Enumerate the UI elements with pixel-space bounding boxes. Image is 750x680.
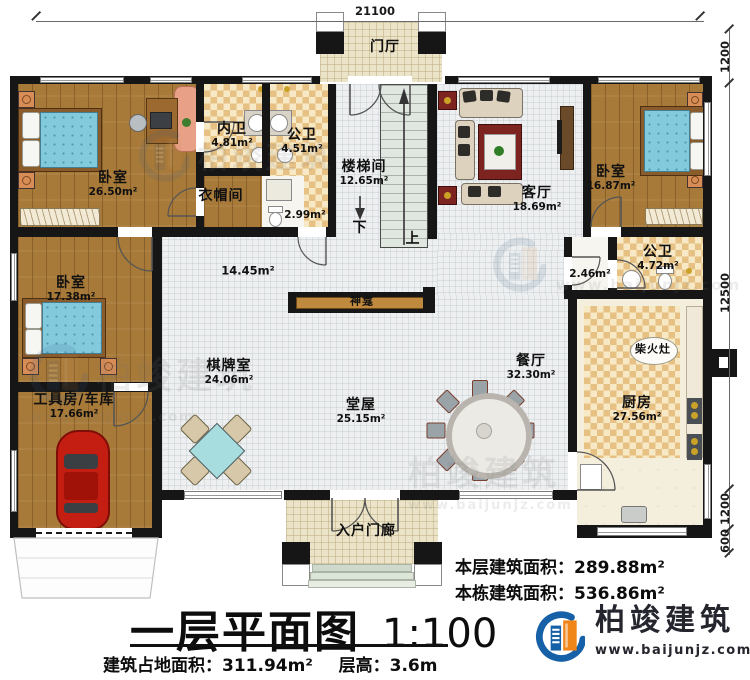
dimension-right-main: 12500 bbox=[718, 273, 732, 313]
chimney-flue bbox=[719, 357, 728, 368]
chair bbox=[427, 423, 446, 439]
plant-icon bbox=[444, 97, 451, 104]
nightstand bbox=[18, 172, 35, 189]
wall bbox=[284, 490, 332, 500]
eave-box bbox=[316, 12, 344, 32]
room-label-bedroom-tl: 卧室 26.50m² bbox=[89, 170, 138, 198]
window bbox=[598, 77, 700, 83]
door-opening bbox=[118, 227, 152, 237]
title-underline bbox=[130, 644, 448, 647]
floor-height-value: 3.6m bbox=[390, 656, 438, 676]
window bbox=[40, 77, 124, 83]
shower-icon bbox=[686, 268, 692, 274]
plant-icon bbox=[494, 146, 504, 156]
window bbox=[184, 491, 282, 499]
wall bbox=[204, 168, 262, 176]
sink-icon bbox=[622, 270, 641, 289]
wall bbox=[568, 299, 577, 452]
nightstand bbox=[100, 358, 117, 375]
column bbox=[414, 542, 442, 564]
door-opening bbox=[196, 122, 204, 152]
cushion bbox=[480, 90, 493, 101]
cushion bbox=[458, 126, 470, 138]
burner-icon bbox=[691, 412, 698, 419]
mattress bbox=[40, 112, 98, 168]
computer-icon bbox=[150, 112, 172, 129]
cushion bbox=[496, 90, 510, 103]
door-opening bbox=[568, 452, 577, 490]
cushion bbox=[458, 144, 470, 156]
eave-box bbox=[418, 12, 446, 32]
kitchen-sink bbox=[621, 506, 647, 523]
wall bbox=[162, 490, 184, 500]
floor-area-value: 289.88m² bbox=[574, 558, 665, 578]
tv-icon bbox=[557, 120, 562, 154]
pillow bbox=[25, 329, 42, 355]
window bbox=[150, 77, 192, 83]
wardrobe bbox=[20, 208, 100, 226]
door-opening bbox=[330, 490, 400, 500]
room-label-kitchen: 厨房 27.56m² bbox=[613, 395, 662, 423]
column bbox=[282, 542, 310, 564]
window bbox=[704, 464, 711, 519]
car-roof bbox=[64, 472, 98, 500]
window bbox=[11, 253, 17, 301]
column bbox=[418, 32, 446, 54]
wall bbox=[564, 290, 712, 299]
mattress bbox=[644, 110, 690, 172]
wall bbox=[553, 490, 577, 500]
company-logo: 柏竣建筑 www.baijunjz.com bbox=[533, 606, 750, 666]
wall bbox=[262, 84, 270, 176]
room-label-garage: 工具房/车库 17.66m² bbox=[33, 392, 114, 420]
room-label-corridor: 14.45m² bbox=[221, 264, 274, 277]
wall bbox=[423, 287, 435, 312]
room-label-lobby-small: 2.46m² bbox=[569, 268, 610, 280]
plant-icon bbox=[182, 118, 191, 127]
building-area-value: 536.86m² bbox=[574, 584, 665, 604]
window bbox=[597, 527, 687, 536]
stairs-up-label: 上 bbox=[406, 231, 421, 247]
toilet-icon bbox=[269, 212, 282, 227]
dimension-tick bbox=[31, 11, 41, 21]
dimension-right-steps: 600 bbox=[718, 529, 732, 553]
column-base bbox=[282, 564, 310, 586]
door-opening bbox=[348, 76, 412, 84]
room-label-dining: 餐厅 32.30m² bbox=[507, 353, 556, 381]
wall bbox=[10, 227, 336, 237]
door-opening bbox=[114, 383, 148, 391]
floor-area-line: 本层建筑面积：289.88m² bbox=[455, 553, 665, 578]
company-website: www.baijunjz.com bbox=[595, 643, 750, 658]
step bbox=[308, 580, 416, 588]
room-label-stairwell: 楼梯间 12.65m² bbox=[340, 159, 389, 187]
kitchen-checker bbox=[584, 306, 680, 458]
burner-icon bbox=[691, 448, 698, 455]
room-label-porch: 入户门廊 bbox=[336, 523, 396, 539]
room-label-bedroom-tr: 卧室 16.87m² bbox=[587, 164, 636, 192]
dimension-right-porch: 1200 bbox=[718, 493, 732, 525]
window bbox=[458, 77, 550, 83]
footprint-value: 311.94m² bbox=[222, 656, 313, 676]
room-label-cloakroom: 衣帽间 bbox=[199, 188, 244, 204]
window bbox=[459, 491, 553, 499]
wall bbox=[400, 490, 445, 500]
room-label-shrine: 神龛 bbox=[350, 296, 374, 309]
mattress bbox=[42, 302, 102, 354]
dimension-tick bbox=[695, 11, 705, 21]
building-area-label: 本栋建筑面积： bbox=[455, 584, 574, 604]
cloakroom-floor bbox=[204, 176, 262, 233]
room-label-living: 客厅 18.69m² bbox=[513, 185, 562, 213]
window bbox=[704, 102, 711, 176]
plant-icon bbox=[444, 192, 451, 199]
company-logo-icon bbox=[533, 606, 585, 666]
car-rear-window bbox=[64, 503, 98, 513]
wall bbox=[583, 84, 591, 237]
column-base bbox=[414, 564, 442, 586]
step bbox=[310, 572, 414, 580]
burner-icon bbox=[691, 402, 698, 409]
column bbox=[316, 32, 344, 54]
tv-cabinet bbox=[560, 106, 574, 170]
room-label-bath-public-top: 公卫 4.51m² bbox=[281, 127, 322, 155]
faucet-icon bbox=[284, 86, 290, 92]
footprint-line: 建筑占地面积：311.94m² 层高：3.6m bbox=[103, 651, 437, 676]
lazy-susan bbox=[476, 423, 492, 439]
dimension-line-top bbox=[36, 21, 704, 22]
pillow bbox=[22, 112, 40, 139]
door-opening bbox=[298, 227, 326, 237]
room-label-stove: 柴火灶 bbox=[635, 344, 671, 357]
burner-icon bbox=[691, 438, 698, 445]
floor-plan-page: 柏竣建筑 柏竣建筑 www.baijunjz.com www.baijunjz.… bbox=[0, 0, 750, 680]
room-label-bath-right: 公卫 4.72m² bbox=[637, 244, 678, 272]
room-label-wc-small: 2.99m² bbox=[284, 209, 325, 221]
nightstand bbox=[22, 358, 39, 375]
wall bbox=[152, 233, 162, 538]
cushion bbox=[488, 186, 501, 197]
cushion bbox=[468, 186, 481, 197]
dimension-top-width: 21100 bbox=[355, 4, 395, 18]
wall bbox=[328, 84, 336, 237]
wall bbox=[428, 84, 437, 239]
window bbox=[242, 77, 312, 83]
fridge bbox=[580, 464, 602, 490]
room-label-foyer: 门厅 bbox=[370, 39, 400, 55]
door-opening bbox=[591, 227, 621, 237]
room-label-chess: 棋牌室 24.06m² bbox=[205, 358, 254, 386]
wall bbox=[445, 490, 459, 500]
dimension-right-foyer: 1200 bbox=[718, 41, 732, 73]
stairs-down-label: 下 bbox=[353, 220, 368, 236]
shower-tray bbox=[266, 179, 292, 201]
toilet-icon bbox=[658, 273, 672, 290]
wardrobe bbox=[645, 208, 703, 225]
building-area-line: 本栋建筑面积：536.86m² bbox=[455, 579, 665, 604]
room-label-main-hall: 堂屋 25.15m² bbox=[337, 397, 386, 425]
garage-door bbox=[36, 532, 132, 534]
floor-height-label: 层高： bbox=[339, 656, 390, 676]
window bbox=[11, 450, 17, 512]
desk-chair bbox=[129, 114, 147, 132]
nightstand bbox=[18, 91, 35, 108]
room-label-bedroom-ml: 卧室 17.38m² bbox=[47, 275, 96, 303]
room-label-bath-inner: 内卫 4.81m² bbox=[211, 121, 252, 149]
step bbox=[312, 564, 412, 572]
company-name: 柏竣建筑 bbox=[595, 606, 750, 636]
hall-floor-upper bbox=[437, 250, 583, 295]
car-windshield bbox=[64, 454, 98, 469]
cushion bbox=[462, 90, 476, 103]
floor-area-label: 本层建筑面积： bbox=[455, 558, 574, 578]
footprint-label: 建筑占地面积： bbox=[103, 656, 222, 676]
pillow bbox=[25, 303, 42, 329]
lobby-small-floor bbox=[572, 237, 608, 290]
pillow bbox=[22, 140, 40, 167]
